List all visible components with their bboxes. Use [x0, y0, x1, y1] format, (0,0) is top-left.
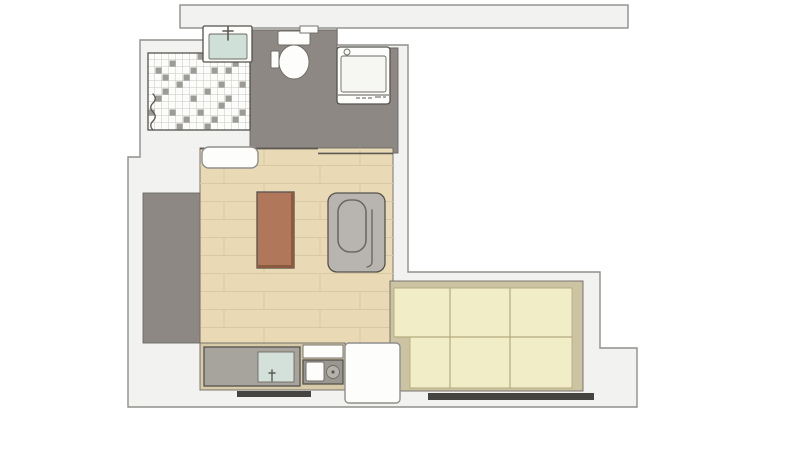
kitchen: [200, 343, 345, 390]
bed-platform: [390, 281, 583, 391]
wall-shelf: [300, 26, 318, 33]
floor-plan-canvas: [0, 0, 800, 458]
toilet-bowl: [279, 45, 309, 79]
washing-machine-detergent-knob: [344, 49, 350, 55]
washing-machine: [337, 47, 390, 104]
armchair-body: [328, 193, 385, 272]
washing-machine-door: [341, 56, 386, 92]
hallway-floor: [143, 193, 200, 343]
window-south-left: [237, 391, 311, 397]
toilet-flush-plate: [271, 51, 279, 68]
dining-table: [257, 192, 294, 268]
stove-counter: [303, 345, 343, 358]
armchair: [328, 193, 385, 272]
kitchen-sink: [258, 352, 294, 382]
bed-mattress: [394, 288, 572, 388]
stove-burner-center: [331, 370, 334, 373]
upper-wall-bar: [180, 5, 628, 28]
table-top: [257, 192, 294, 268]
window-south-right: [428, 393, 594, 400]
wall-pier: [345, 343, 400, 403]
entry-door-step: [202, 147, 258, 168]
stove-hob: [306, 362, 324, 381]
bathroom-vanity: [203, 26, 252, 62]
